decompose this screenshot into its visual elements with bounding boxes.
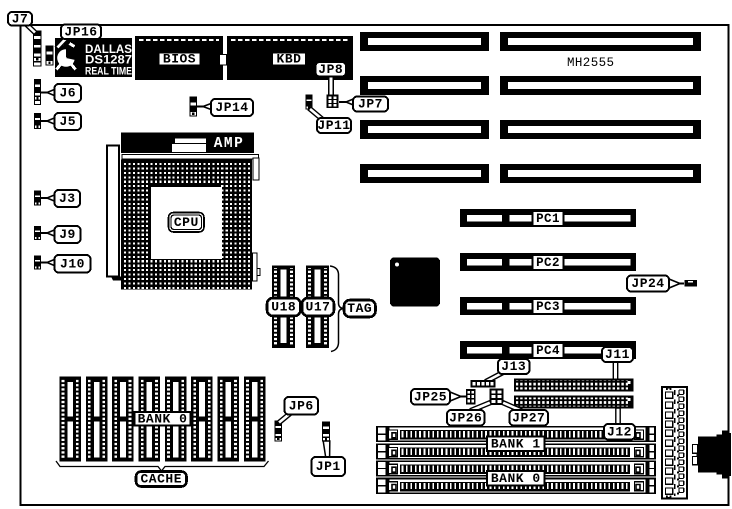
svg-text:JP16: JP16 bbox=[64, 24, 97, 39]
svg-text:CACHE: CACHE bbox=[140, 472, 182, 487]
svg-text:PC1: PC1 bbox=[536, 212, 560, 226]
svg-text:JP27: JP27 bbox=[512, 410, 545, 425]
svg-text:J7: J7 bbox=[12, 11, 29, 26]
svg-text:JP1: JP1 bbox=[316, 459, 341, 474]
svg-text:KBD: KBD bbox=[277, 52, 302, 67]
svg-text:J3: J3 bbox=[59, 191, 76, 206]
svg-text:J5: J5 bbox=[59, 114, 76, 129]
svg-text:PC3: PC3 bbox=[536, 300, 560, 314]
svg-text:JP7: JP7 bbox=[358, 97, 383, 112]
svg-text:J11: J11 bbox=[605, 347, 630, 362]
svg-text:PC2: PC2 bbox=[536, 256, 560, 270]
svg-text:JP26: JP26 bbox=[449, 410, 482, 425]
svg-text:J6: J6 bbox=[59, 86, 76, 101]
svg-text:BIOS: BIOS bbox=[163, 52, 196, 67]
svg-text:J10: J10 bbox=[60, 256, 85, 271]
svg-text:DS1287: DS1287 bbox=[85, 53, 132, 67]
svg-text:BANK 0: BANK 0 bbox=[138, 411, 188, 426]
svg-text:AMP: AMP bbox=[214, 136, 245, 152]
svg-text:MH2555: MH2555 bbox=[567, 56, 614, 70]
svg-text:JP24: JP24 bbox=[631, 276, 664, 291]
svg-text:JP14: JP14 bbox=[215, 100, 248, 115]
svg-text:J12: J12 bbox=[607, 424, 632, 439]
svg-text:J13: J13 bbox=[501, 359, 526, 374]
svg-text:JP6: JP6 bbox=[289, 398, 314, 413]
svg-text:TAG: TAG bbox=[347, 301, 372, 316]
svg-text:JP25: JP25 bbox=[414, 389, 447, 404]
svg-text:BANK 1: BANK 1 bbox=[491, 436, 541, 451]
svg-text:PC4: PC4 bbox=[536, 344, 560, 358]
svg-text:JP8: JP8 bbox=[318, 62, 343, 77]
svg-text:U17: U17 bbox=[306, 300, 331, 315]
svg-text:JP11: JP11 bbox=[317, 118, 350, 133]
svg-text:CPU: CPU bbox=[174, 215, 199, 230]
svg-text:U18: U18 bbox=[271, 300, 296, 315]
svg-text:REAL TIME: REAL TIME bbox=[85, 66, 132, 78]
svg-text:BANK 0: BANK 0 bbox=[491, 471, 541, 486]
svg-text:J9: J9 bbox=[59, 227, 76, 242]
